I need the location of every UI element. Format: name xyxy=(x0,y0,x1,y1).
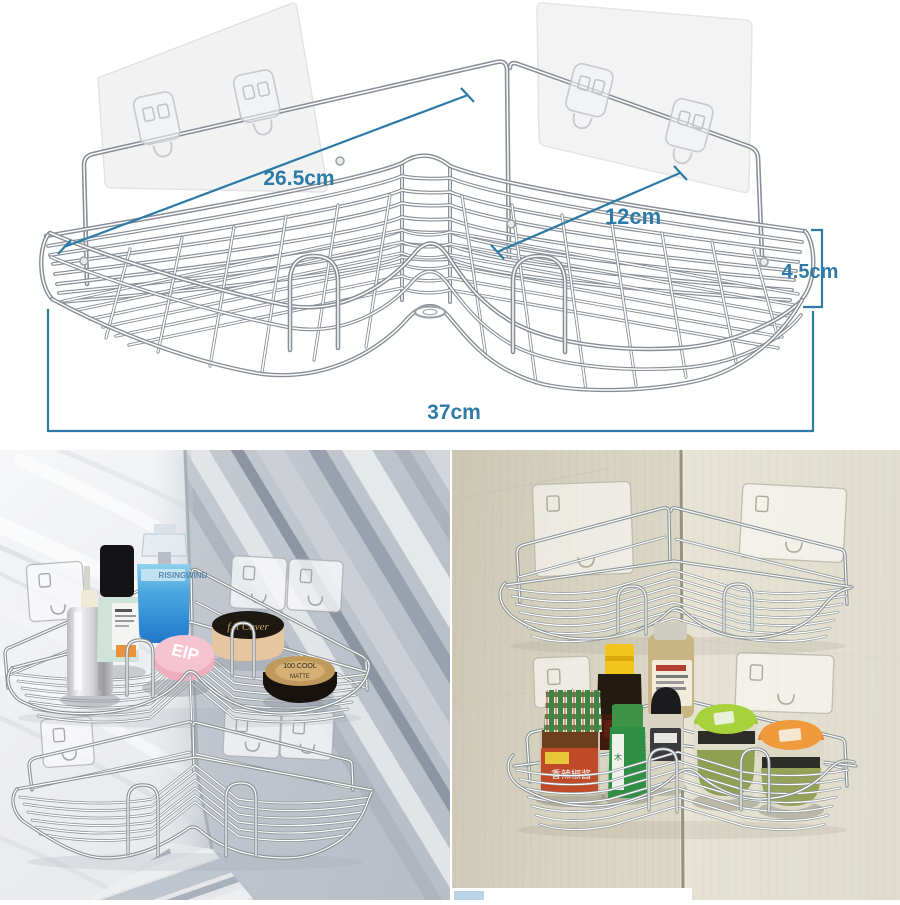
svg-text:木: 木 xyxy=(614,752,622,762)
svg-text:37cm: 37cm xyxy=(427,401,481,424)
svg-text:RISINGWIND: RISINGWIND xyxy=(159,571,208,580)
svg-text:4.5cm: 4.5cm xyxy=(782,261,839,283)
svg-text:MATTE: MATTE xyxy=(290,674,310,680)
svg-text:100.COOL: 100.COOL xyxy=(283,663,317,670)
svg-text:12cm: 12cm xyxy=(605,204,661,229)
svg-text:26.5cm: 26.5cm xyxy=(263,167,334,190)
